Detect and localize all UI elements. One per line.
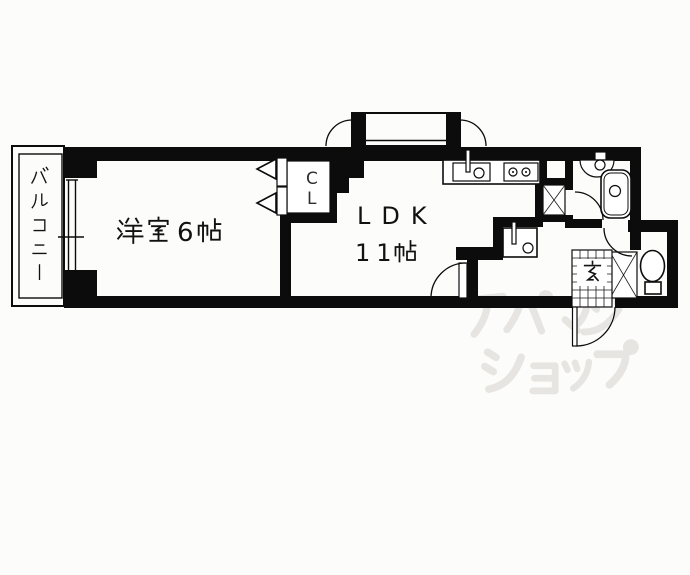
watermark-char — [563, 360, 589, 389]
ldk-tatami-count: 11 — [355, 239, 398, 267]
gas-stove — [504, 163, 538, 181]
pipe-space — [543, 185, 565, 215]
watermark-char — [533, 366, 556, 391]
bathroom — [580, 152, 631, 218]
closet-bifold-door — [257, 158, 287, 215]
watermark-char — [597, 343, 635, 385]
watermark-char — [484, 349, 524, 389]
shoe-cabinet — [610, 252, 637, 298]
ldk-door — [431, 263, 467, 298]
bathtub — [601, 170, 631, 218]
closet — [257, 158, 330, 215]
label-balcony — [32, 167, 48, 279]
floor-plan-drawing: 6 LDK 11 C L — [0, 0, 690, 575]
ldk-text: LDK — [357, 202, 438, 230]
wash-basin — [503, 222, 537, 257]
closet-char-c: C — [306, 169, 318, 189]
label-ldk: LDK 11 — [355, 202, 438, 267]
label-closet: C L — [306, 169, 318, 209]
room-tatami-count: 6 — [177, 218, 194, 248]
balcony — [12, 146, 64, 306]
toilet — [641, 251, 665, 295]
entrance-tile — [572, 250, 612, 307]
closet-char-l: L — [307, 189, 317, 209]
bathroom-door — [575, 192, 603, 220]
floor-plan: 6 LDK 11 C L 洋室6帖 バルコニー １１帖 玄 アパマンショップ — [0, 0, 690, 575]
label-western-room: 6 — [118, 218, 220, 248]
